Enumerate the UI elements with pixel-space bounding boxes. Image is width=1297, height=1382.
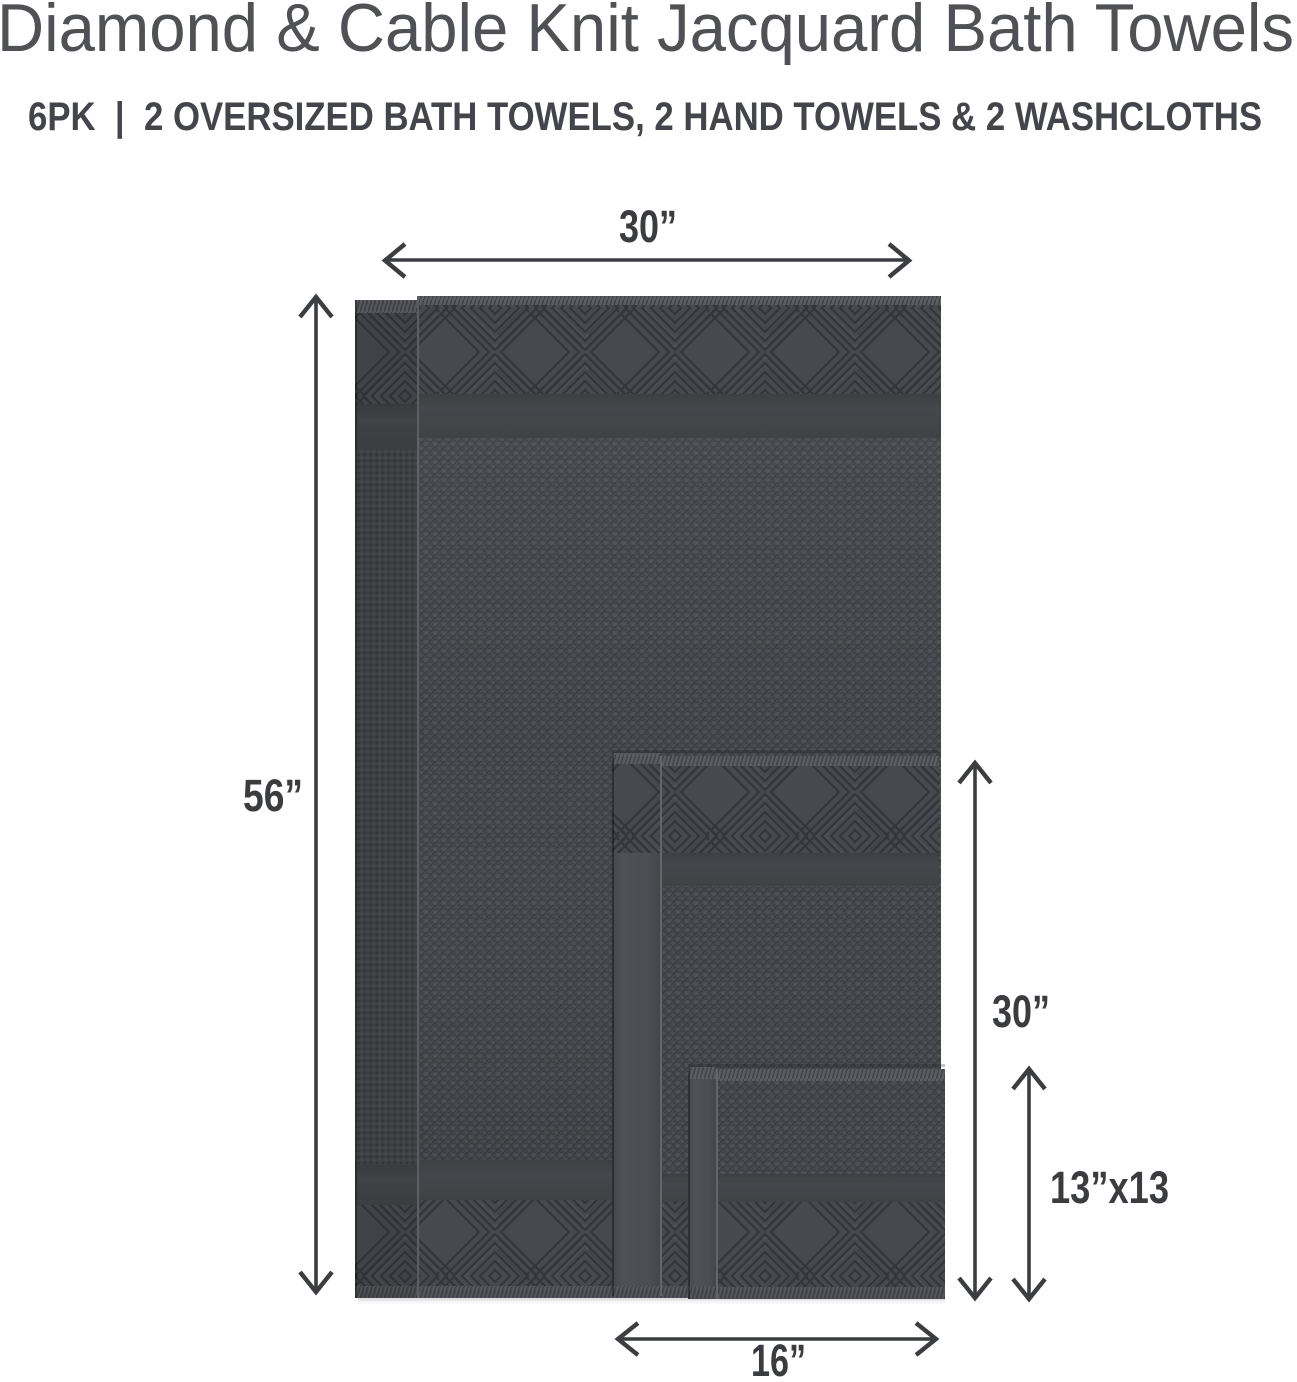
svg-text:16”: 16” xyxy=(751,1335,806,1382)
svg-text:56”: 56” xyxy=(243,770,303,821)
svg-text:6PK | 2 OVERSIZED BATH TOWEL: 6PK | 2 OVERSIZED BATH TOWELS, 2 HAND TO… xyxy=(28,95,1262,139)
svg-text:30”: 30” xyxy=(619,201,677,252)
svg-text:Diamond & Cable Knit Jacquard: Diamond & Cable Knit Jacquard Bath Towel… xyxy=(0,0,1294,66)
svg-text:30”: 30” xyxy=(992,986,1050,1037)
svg-text:13”x13: 13”x13 xyxy=(1050,1162,1169,1213)
